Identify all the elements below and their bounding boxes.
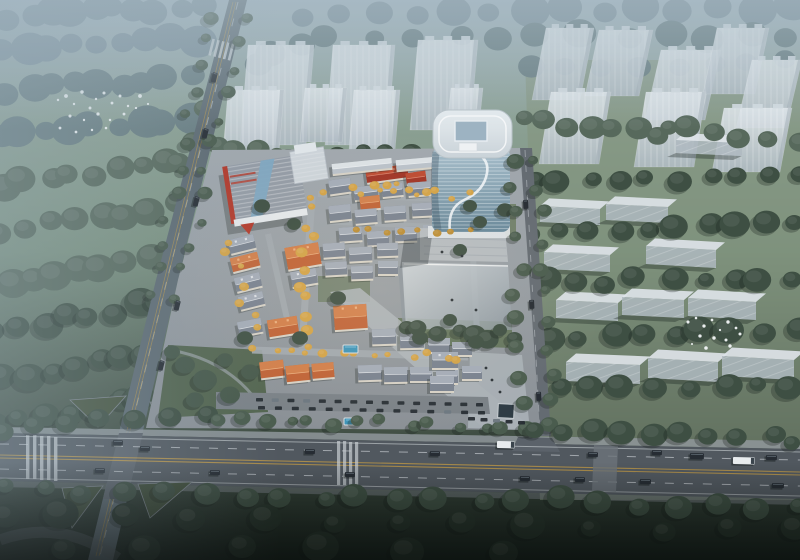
tree-highlight xyxy=(778,378,793,390)
vehicle-body xyxy=(430,451,440,456)
tree-highlight xyxy=(785,273,795,281)
tree-highlight xyxy=(700,430,711,438)
tree-highlight xyxy=(762,168,773,176)
tree-highlight xyxy=(606,324,622,337)
tree-highlight xyxy=(608,377,623,389)
tree-highlight xyxy=(529,157,535,161)
tree-highlight xyxy=(612,173,624,183)
tree-highlight xyxy=(687,319,704,332)
tree-highlight xyxy=(768,428,779,437)
tree-highlight xyxy=(728,271,741,281)
tree-highlight xyxy=(587,174,596,181)
vehicle-body xyxy=(588,452,598,457)
bottom-vignette xyxy=(0,462,800,560)
tree-highlight xyxy=(756,213,771,224)
aerial-render-svg: Aerial architectural rendering of a mixe… xyxy=(0,0,800,560)
tree-highlight xyxy=(707,170,717,177)
vehicle-body xyxy=(305,449,315,454)
bird xyxy=(724,338,727,341)
tree-highlight xyxy=(755,325,768,335)
tree-highlight xyxy=(635,326,648,336)
vehicle-body xyxy=(652,450,662,455)
tree-highlight xyxy=(670,173,684,183)
car xyxy=(764,455,777,462)
bird xyxy=(698,334,701,337)
tree-highlight xyxy=(700,274,709,281)
tree-highlight xyxy=(645,380,659,390)
truck-cab xyxy=(511,442,515,448)
tree-highlight xyxy=(728,430,739,439)
car xyxy=(586,452,598,459)
truck xyxy=(495,441,515,450)
bird xyxy=(695,317,698,320)
tree-highlight xyxy=(610,423,626,435)
bird xyxy=(735,327,738,330)
bird xyxy=(738,332,741,335)
ghost-slab-fins xyxy=(622,297,684,318)
tree-highlight xyxy=(579,378,594,389)
tree-highlight xyxy=(716,320,733,333)
tree-highlight xyxy=(683,383,694,391)
bird xyxy=(712,336,715,339)
tree-highlight xyxy=(786,438,795,445)
car xyxy=(650,450,662,457)
tree-highlight xyxy=(746,270,762,282)
car xyxy=(688,453,704,461)
tree-highlight xyxy=(527,424,537,432)
tree-highlight xyxy=(729,169,740,177)
tree-highlight xyxy=(787,217,797,225)
ghost-slab xyxy=(637,238,725,272)
tree-highlight xyxy=(723,214,740,227)
tree-highlight xyxy=(760,133,771,141)
bird xyxy=(719,329,721,331)
tree-highlight xyxy=(663,217,679,229)
bird xyxy=(711,319,714,322)
ghost-slab-fins xyxy=(606,204,668,223)
tree-highlight xyxy=(729,131,742,141)
tree-highlight xyxy=(665,270,680,281)
tree-highlight xyxy=(638,172,647,179)
bird xyxy=(728,344,731,347)
tree-highlight xyxy=(719,376,734,387)
tree-highlight xyxy=(555,426,566,434)
car xyxy=(428,451,440,458)
bird xyxy=(726,320,729,323)
parked-car xyxy=(518,421,525,425)
vehicle-body xyxy=(766,455,777,460)
bird xyxy=(702,324,705,327)
car xyxy=(303,449,315,456)
tree-highlight xyxy=(649,129,661,138)
bird xyxy=(704,346,708,350)
tree-highlight xyxy=(751,379,760,386)
tree-highlight xyxy=(670,424,684,435)
tree-highlight xyxy=(584,421,599,432)
tree-highlight xyxy=(702,215,716,225)
tree-highlight xyxy=(642,224,652,232)
bird xyxy=(686,320,689,323)
tree-highlight xyxy=(614,223,627,233)
tree-highlight xyxy=(543,419,553,426)
tree-highlight xyxy=(644,426,659,437)
tree-highlight xyxy=(623,268,636,278)
rendering-canvas: Aerial architectural rendering of a mixe… xyxy=(0,0,800,560)
bird xyxy=(691,343,693,345)
